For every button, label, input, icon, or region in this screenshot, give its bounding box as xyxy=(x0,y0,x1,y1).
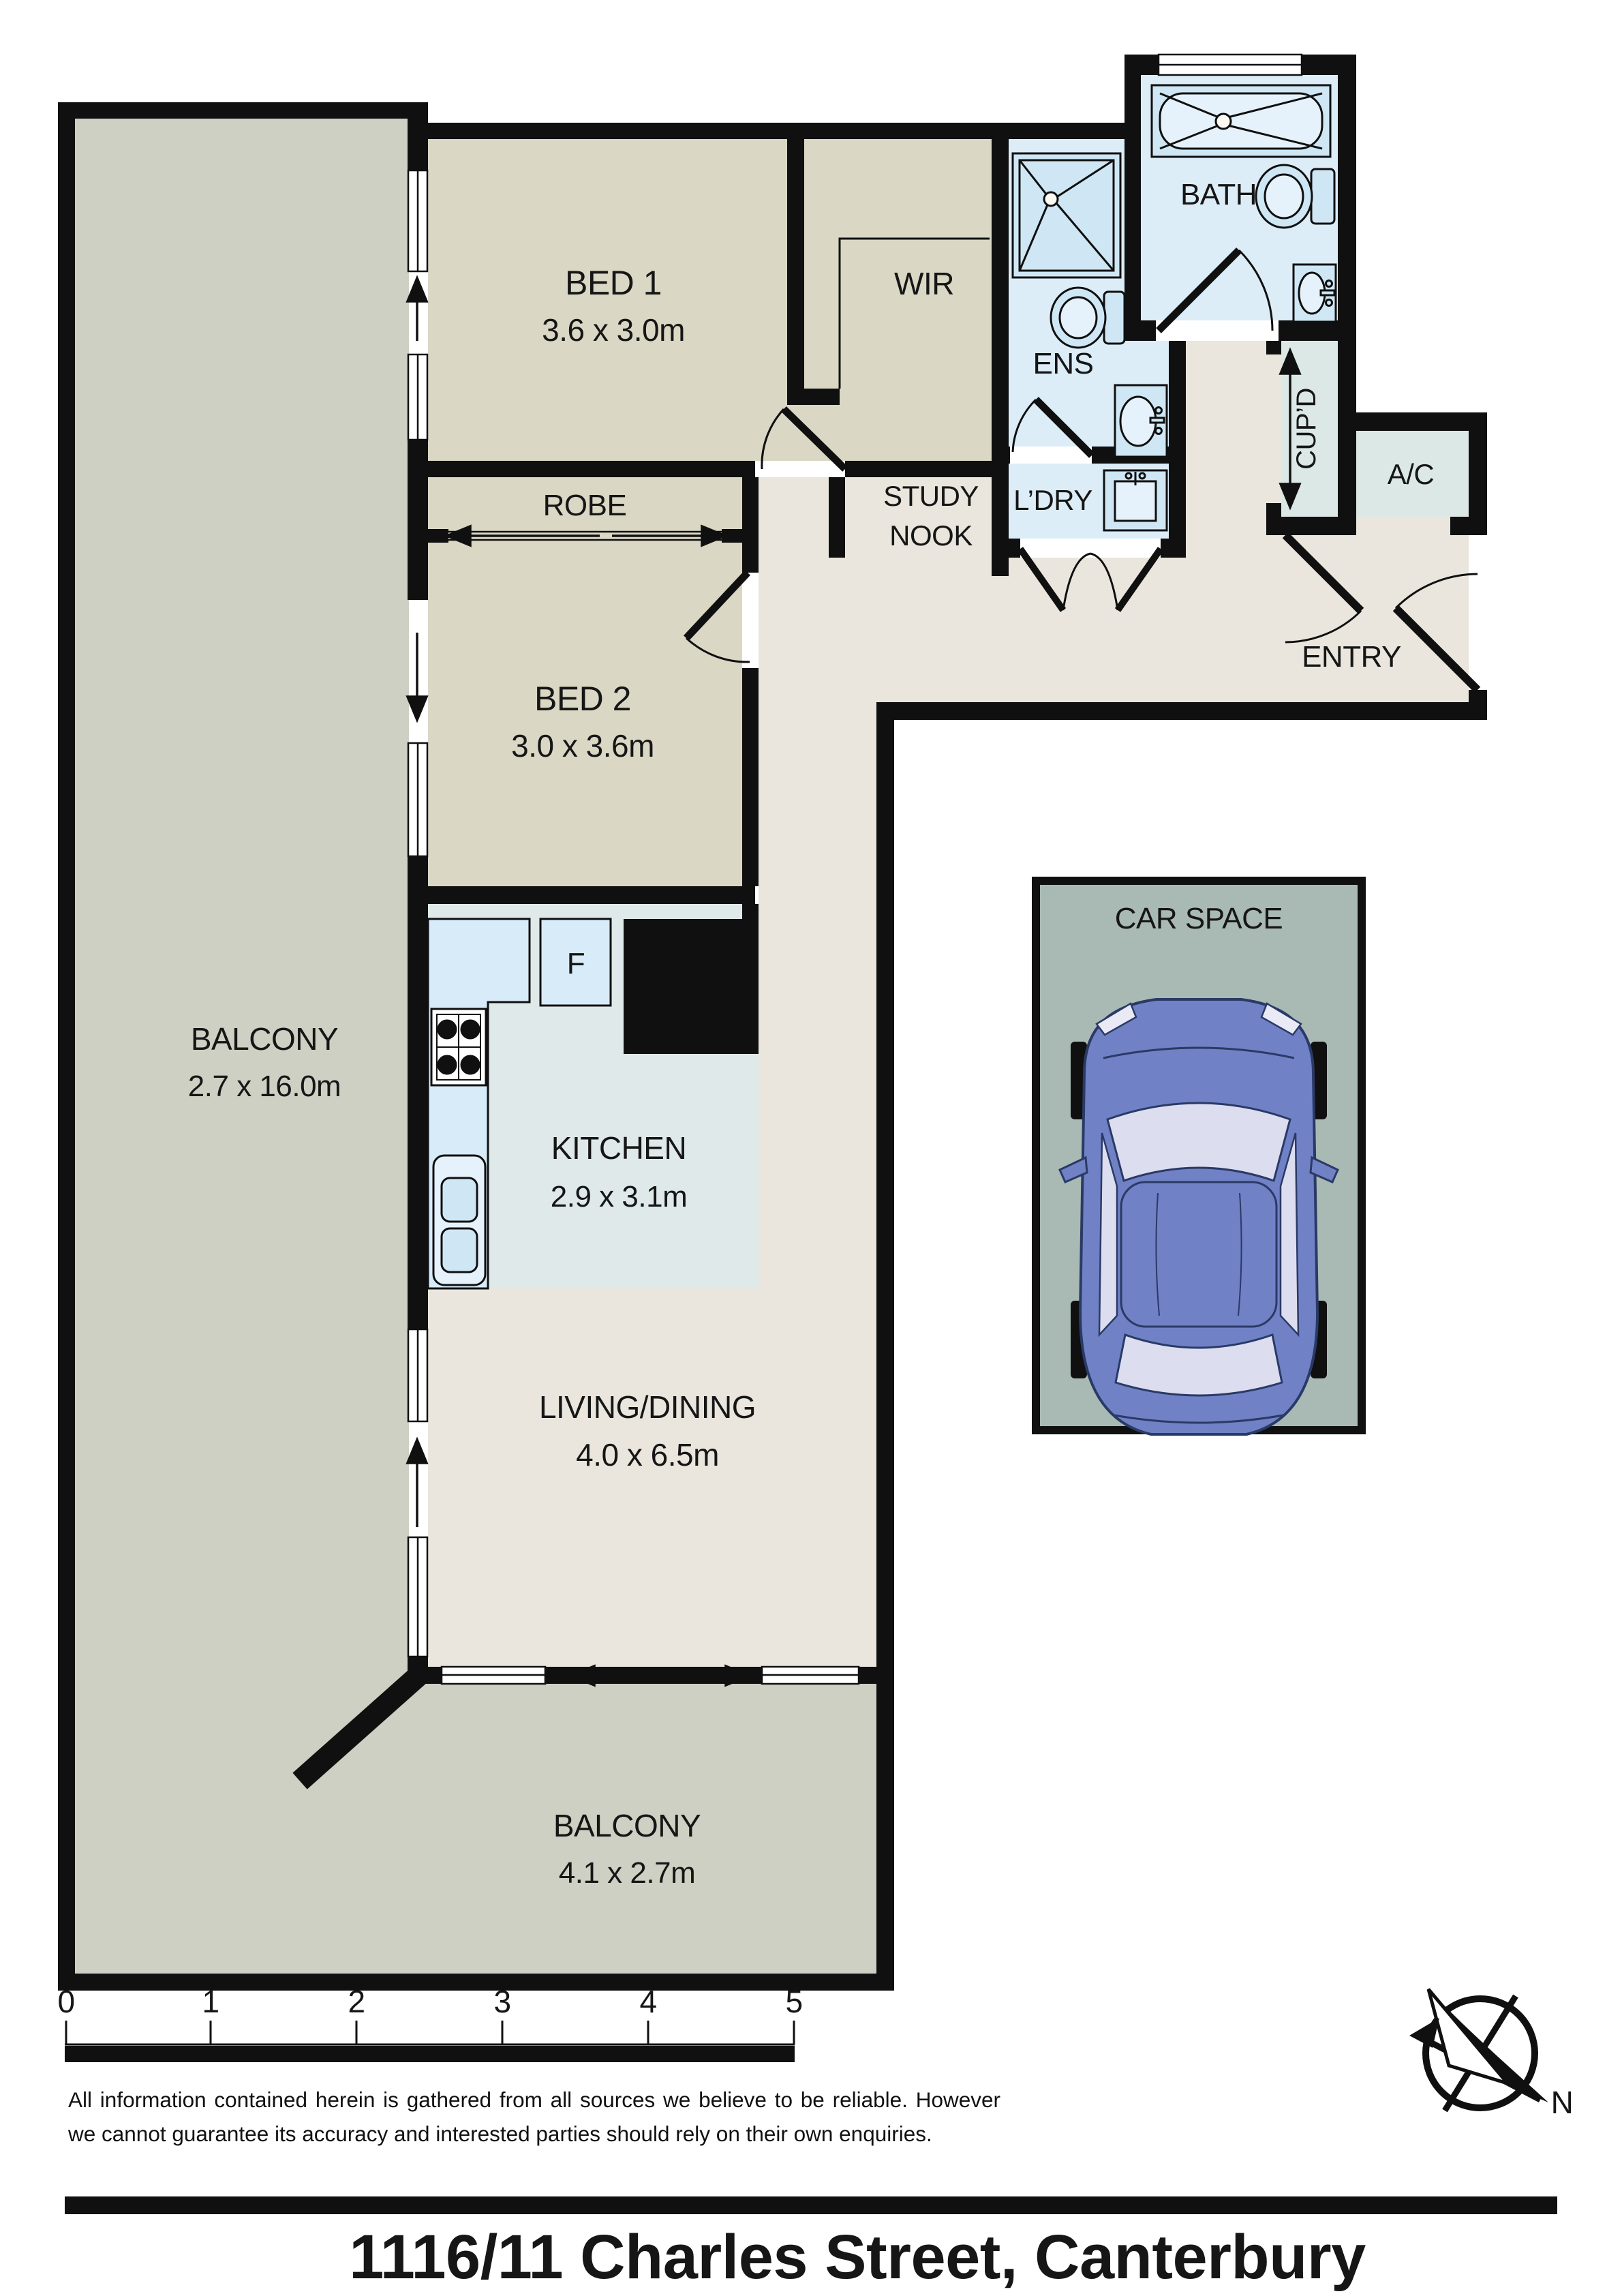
wall-wir-left xyxy=(787,139,804,405)
wall-living-right xyxy=(876,720,894,1667)
wall-outer-right-upper xyxy=(1469,412,1487,535)
balcony-rear-label: BALCONY xyxy=(553,1808,701,1843)
study-nook-label-2: NOOK xyxy=(889,519,973,552)
window-icon xyxy=(408,1537,427,1657)
wall-kitchen-right xyxy=(742,904,759,1054)
wall-cupd-stub-bottom xyxy=(1266,503,1281,517)
living-dims: 4.0 x 6.5m xyxy=(576,1437,719,1472)
window-icon xyxy=(408,170,427,271)
scale-tick-label: 2 xyxy=(348,1984,365,2019)
cupd-label: CUP’D xyxy=(1291,388,1321,470)
toilet-icon xyxy=(1051,288,1124,348)
car-roof xyxy=(1121,1182,1276,1327)
scale-tick-label: 0 xyxy=(57,1984,74,2019)
ens-label: ENS xyxy=(1033,347,1094,380)
scale-tick-label: 3 xyxy=(493,1984,510,2019)
hall-sliver-floor xyxy=(992,576,1009,702)
window-icon xyxy=(408,354,427,440)
arrow-up-icon xyxy=(408,1440,427,1527)
toilet-icon xyxy=(1256,165,1334,228)
wall-main-top xyxy=(428,123,1141,139)
wall-bed2-right-upper xyxy=(742,477,759,573)
wall-bed1-bottom-right xyxy=(845,461,1009,477)
window-icon xyxy=(762,1667,859,1684)
scale-tick-label: 1 xyxy=(202,1984,219,2019)
window-icon xyxy=(408,1329,427,1421)
bath-label: BATH xyxy=(1180,178,1257,211)
living-label: LIVING/DINING xyxy=(539,1389,756,1425)
kitchen-dims: 2.9 x 3.1m xyxy=(551,1180,687,1213)
balcony-rear-dims: 4.1 x 2.7m xyxy=(559,1856,695,1890)
wall-ldry-bottom-right xyxy=(1161,539,1186,558)
wall-segment xyxy=(408,440,428,600)
wall-bath-bottom-left xyxy=(1124,320,1156,341)
wall-bath-left xyxy=(1124,55,1141,341)
scale-bar-fill xyxy=(65,2046,795,2062)
scale-tick-label: 4 xyxy=(639,1984,656,2019)
stove-icon xyxy=(431,1009,486,1085)
wall-bath-bottom-right xyxy=(1279,320,1356,341)
living-floor xyxy=(428,1288,876,1667)
wall-ldry-bottom-left xyxy=(992,539,1020,558)
sink-icon xyxy=(1294,265,1336,322)
sink-icon xyxy=(1115,385,1167,457)
wall-ens-right-lower xyxy=(1169,341,1186,539)
page-title: 1116/11 Charles Street, Canterbury xyxy=(349,2222,1366,2292)
ldry-label: L’DRY xyxy=(1013,484,1092,516)
wall-ens-left xyxy=(992,139,1009,576)
wall-living-bottom-c xyxy=(859,1667,894,1684)
floorplan-page: BED 1 3.6 x 3.0m WIR ROBE BED 2 3.0 x 3.… xyxy=(0,0,1622,2296)
window-icon xyxy=(1159,55,1302,75)
wall-wing-bottom xyxy=(876,702,1487,720)
bed2-label: BED 2 xyxy=(534,680,631,718)
ac-label: A/C xyxy=(1388,458,1435,490)
wall-balcony-top xyxy=(58,102,428,119)
study-nook-label-1: STUDY xyxy=(883,480,979,512)
wall-bed2-right-lower xyxy=(742,668,759,886)
balcony-side-label: BALCONY xyxy=(191,1021,338,1057)
wall-outer-bottom xyxy=(58,1974,894,1991)
scale-tick-label: 5 xyxy=(785,1984,802,2019)
bed1-dims: 3.6 x 3.0m xyxy=(542,312,685,348)
wall-ens-bottom-corner xyxy=(992,447,1010,464)
wall-nook-stub xyxy=(829,477,845,558)
wir-label: WIR xyxy=(894,266,954,301)
north-label: N xyxy=(1551,2085,1574,2120)
car-space-label: CAR SPACE xyxy=(1115,902,1283,935)
wall-bed1-bottom-left xyxy=(428,461,755,477)
bed1-label: BED 1 xyxy=(565,264,662,302)
robe-label: ROBE xyxy=(543,489,627,522)
wall-balcony-right xyxy=(876,1667,894,1991)
kitchen-label: KITCHEN xyxy=(551,1130,686,1166)
scale-bar: 0 1 2 3 4 5 xyxy=(57,1984,802,2062)
wall-bath-right xyxy=(1338,55,1356,535)
balcony-rear-floor xyxy=(75,1684,876,1974)
bathtub-icon xyxy=(1152,85,1330,157)
arrow-up-icon xyxy=(408,278,427,341)
wall-cupd-stub-top xyxy=(1266,341,1281,354)
wall-outer-left xyxy=(58,102,75,1991)
arrow-down-icon xyxy=(408,633,427,720)
hall-bifold-floor xyxy=(1009,558,1186,702)
entry-label: ENTRY xyxy=(1302,640,1401,674)
wall-cupd-bottom xyxy=(1266,517,1356,535)
kitchen-sink-icon xyxy=(433,1155,485,1285)
disclaimer-text: All information contained herein is gath… xyxy=(68,2083,1000,2151)
fridge-label: F xyxy=(567,947,585,980)
bed2-dims: 3.0 x 3.6m xyxy=(511,728,654,764)
footer-divider xyxy=(65,2196,1557,2214)
wall-segment xyxy=(408,102,428,170)
car-icon xyxy=(1060,999,1338,1434)
shower-icon xyxy=(1013,153,1120,277)
balcony-side-dims: 2.7 x 16.0m xyxy=(188,1070,341,1103)
wall-kitchen-top xyxy=(408,886,755,904)
wall-shaft-bottom xyxy=(624,1036,759,1054)
wall-segment xyxy=(408,904,428,1329)
wall-ac-stub xyxy=(1450,517,1469,535)
services-shaft xyxy=(624,919,742,1036)
floorplan-drawing: BED 1 3.6 x 3.0m WIR ROBE BED 2 3.0 x 3.… xyxy=(0,0,1622,2296)
north-compass-icon: N xyxy=(1409,1989,1573,2120)
window-icon xyxy=(442,1667,545,1684)
wall-wir-stub xyxy=(804,389,840,405)
window-icon xyxy=(408,743,427,856)
laundry-trough-icon xyxy=(1104,470,1167,530)
wall-ac-top xyxy=(1338,412,1487,431)
